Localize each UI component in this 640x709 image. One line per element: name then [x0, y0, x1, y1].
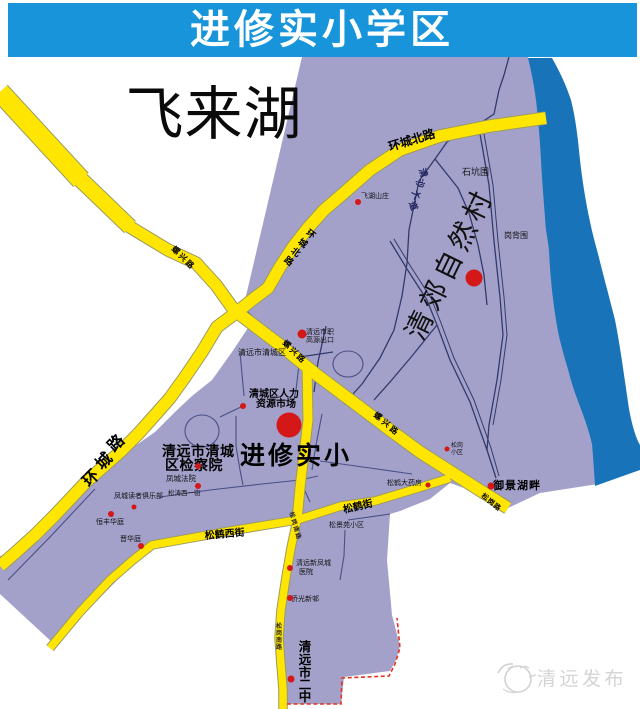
svg-text:岗: 岗: [276, 629, 282, 637]
svg-text:松: 松: [276, 622, 282, 630]
svg-text:松涛西一街: 松涛西一街: [168, 488, 201, 497]
svg-text:进修实小: 进修实小: [240, 441, 352, 470]
svg-text:侨光新邨: 侨光新邨: [291, 594, 319, 603]
svg-text:清远新凤城: 清远新凤城: [296, 558, 331, 567]
svg-text:区检察院: 区检察院: [165, 457, 223, 473]
svg-text:清远市职: 清远市职: [306, 327, 334, 336]
svg-text:南: 南: [276, 636, 282, 644]
svg-text:清远市清城区: 清远市清城区: [238, 347, 286, 357]
svg-text:高源出口: 高源出口: [306, 335, 334, 344]
svg-text:凤城读者俱乐部: 凤城读者俱乐部: [114, 491, 163, 500]
svg-text:路: 路: [276, 643, 283, 651]
svg-text:御景湖畔: 御景湖畔: [492, 478, 541, 492]
svg-text:飞来湖: 飞来湖: [125, 82, 302, 147]
svg-text:松鹤大药房: 松鹤大药房: [387, 478, 422, 487]
svg-text:小区: 小区: [451, 448, 463, 456]
svg-text:远: 远: [299, 653, 312, 667]
svg-text:岗背围: 岗背围: [504, 230, 528, 240]
svg-text:医院: 医院: [299, 567, 313, 576]
svg-text:中: 中: [299, 689, 312, 704]
svg-text:清远发布: 清远发布: [537, 668, 627, 690]
svg-text:松景苑小区: 松景苑小区: [329, 520, 364, 529]
svg-text:恒丰华庭: 恒丰华庭: [96, 517, 124, 526]
svg-text:资源市场: 资源市场: [256, 397, 296, 410]
svg-text:进修实小学区: 进修实小学区: [190, 8, 454, 52]
svg-text:松岗: 松岗: [451, 441, 463, 449]
svg-text:晋华庭: 晋华庭: [120, 534, 141, 543]
svg-text:凤城法院: 凤城法院: [166, 473, 196, 483]
svg-text:石坑围: 石坑围: [462, 166, 489, 177]
svg-text:飞湖山庄: 飞湖山庄: [361, 191, 389, 200]
svg-text:清: 清: [299, 639, 312, 654]
